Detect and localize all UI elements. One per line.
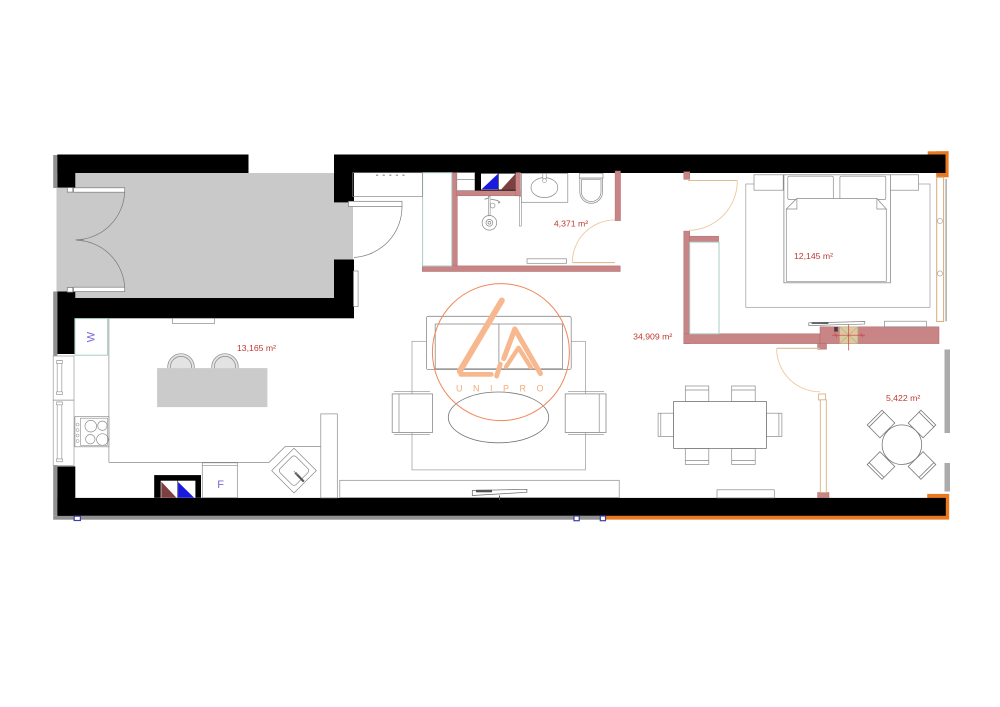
svg-text:F: F: [217, 479, 224, 491]
svg-text:34,909 m²: 34,909 m²: [633, 331, 672, 341]
svg-text:13,165 m²: 13,165 m²: [237, 343, 276, 353]
svg-text:5,422 m²: 5,422 m²: [886, 393, 920, 403]
svg-text:4,371 m²: 4,371 m²: [554, 218, 588, 228]
svg-text:W: W: [86, 331, 98, 342]
svg-text:UNIPRO: UNIPRO: [456, 384, 554, 394]
svg-text:12,145 m²: 12,145 m²: [794, 251, 833, 261]
